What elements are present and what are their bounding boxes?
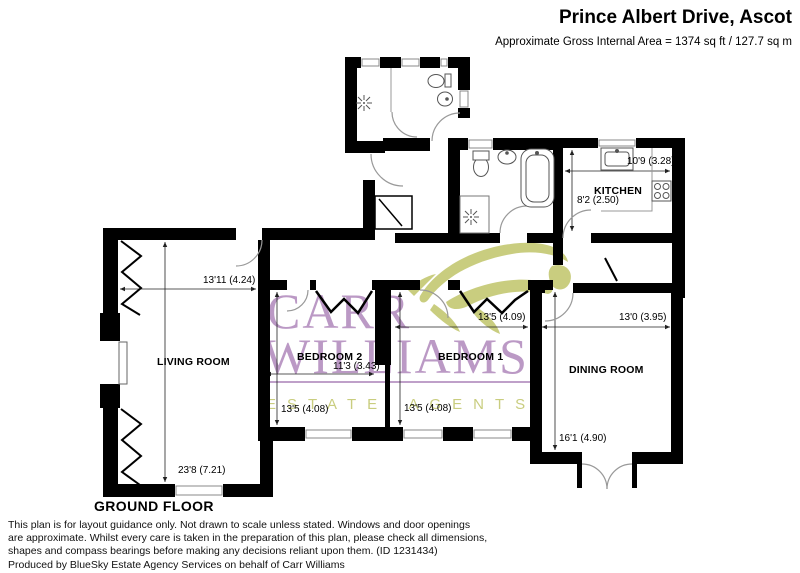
window xyxy=(598,138,636,148)
door-arc xyxy=(392,112,417,137)
hob-icon xyxy=(652,181,671,201)
window xyxy=(458,90,470,108)
window xyxy=(473,427,512,441)
window xyxy=(361,57,380,68)
window xyxy=(468,138,493,150)
dim-living-width: 13'11 (4.24) xyxy=(203,275,255,286)
door-arc xyxy=(371,154,403,186)
window xyxy=(401,57,420,68)
toilet-icon xyxy=(428,74,451,88)
shower-icon xyxy=(460,196,489,233)
disclaimer-text: This plan is for layout guidance only. N… xyxy=(8,519,487,572)
gross-internal-area: Approximate Gross Internal Area = 1374 s… xyxy=(495,36,792,48)
window xyxy=(175,484,223,497)
door-arc xyxy=(287,290,308,311)
door-arc xyxy=(582,464,607,489)
cupboard xyxy=(375,196,412,229)
room-label-living: LIVING ROOM xyxy=(157,356,230,368)
disclaimer-line: shapes and compass bearings before makin… xyxy=(8,545,487,558)
dim-bedroom1-height: 13'5 (4.08) xyxy=(404,403,452,414)
disclaimer-line: are approximate. Whilst every care is ta… xyxy=(8,532,487,545)
floorplan-page: CARR WILLIAMS ESTATE AGENTS xyxy=(0,0,800,573)
door-arc xyxy=(607,464,632,489)
page-title: Prince Albert Drive, Ascot xyxy=(559,7,792,29)
floor-plan-drawing xyxy=(0,0,800,573)
toilet-icon xyxy=(473,151,489,177)
walls xyxy=(100,57,685,497)
door-arcs xyxy=(236,68,632,489)
floor-label: GROUND FLOOR xyxy=(94,498,214,514)
window xyxy=(305,427,352,441)
dim-kitchen-width: 10'9 (3.28) xyxy=(627,156,675,167)
room-label-bedroom1: BEDROOM 1 xyxy=(438,351,503,363)
disclaimer-line: Produced by BlueSky Estate Agency Servic… xyxy=(8,559,487,572)
disclaimer-line: This plan is for layout guidance only. N… xyxy=(8,519,487,532)
dim-living-height: 23'8 (7.21) xyxy=(178,465,226,476)
window xyxy=(440,57,448,68)
dim-bedroom1-width: 13'5 (4.09) xyxy=(478,312,526,323)
dim-bedroom2-height: 13'5 (4.08) xyxy=(281,404,329,415)
basin-icon xyxy=(438,92,453,106)
door-arc xyxy=(563,210,591,238)
dim-bedroom2-width: 11'3 (3.43) xyxy=(333,361,380,372)
dim-dining-height: 16'1 (4.90) xyxy=(559,433,607,444)
door-arc xyxy=(545,293,573,321)
door-arc xyxy=(432,113,460,141)
shower-head-icon xyxy=(356,95,372,111)
window xyxy=(119,342,127,384)
bathtub-icon xyxy=(521,149,554,207)
door-leaf xyxy=(605,258,617,281)
door-arc xyxy=(500,206,527,233)
basin-icon xyxy=(498,150,516,164)
dim-kitchen-height: 8'2 (2.50) xyxy=(577,195,619,206)
room-label-dining: DINING ROOM xyxy=(569,364,644,376)
dim-dining-width: 13'0 (3.95) xyxy=(619,312,667,323)
window xyxy=(403,427,443,441)
